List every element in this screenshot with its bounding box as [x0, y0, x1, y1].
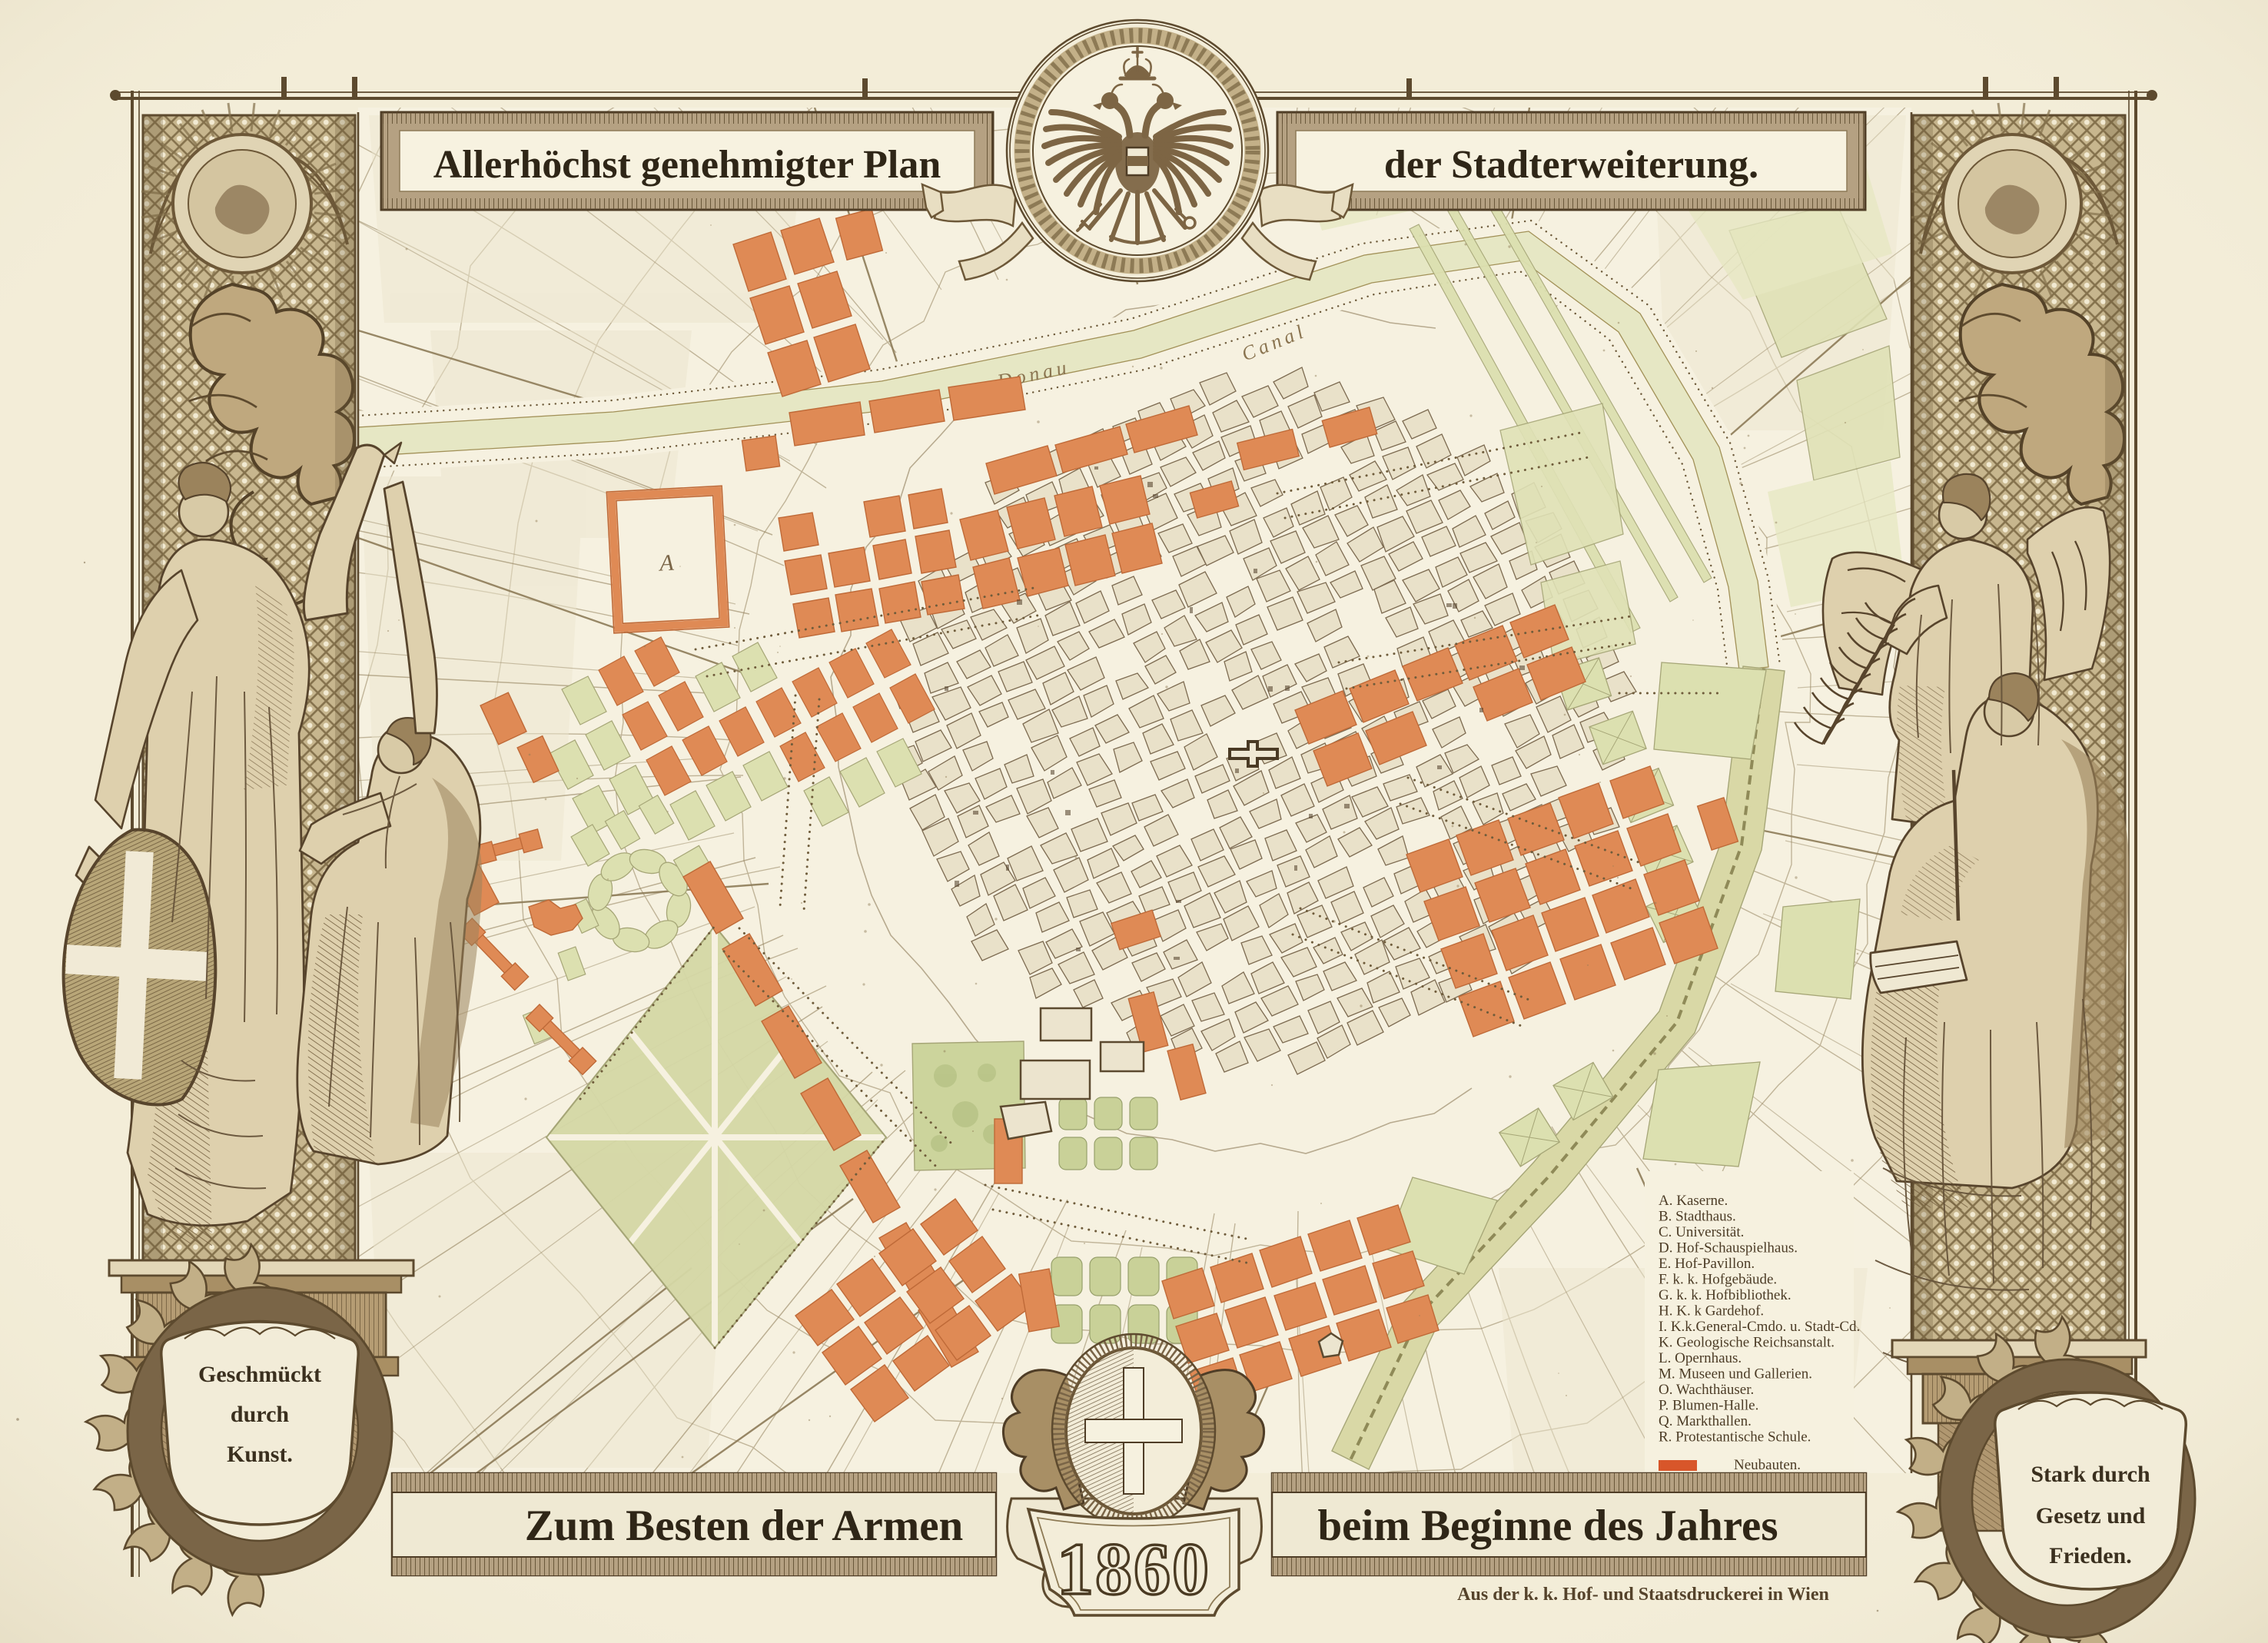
svg-text:Aus der k. k. Hof- und Staatsd: Aus der k. k. Hof- und Staatsdruckerei i… [1457, 1585, 1829, 1605]
svg-text:Allerhöchst genehmigter Plan: Allerhöchst genehmigter Plan [433, 143, 941, 187]
svg-text:P. Blumen-Halle.: P. Blumen-Halle. [1659, 1398, 1758, 1414]
svg-text:Frieden.: Frieden. [2049, 1543, 2131, 1568]
svg-text:G. k. k. Hofbibliothek.: G. k. k. Hofbibliothek. [1659, 1287, 1791, 1303]
svg-text:A. Kaserne.: A. Kaserne. [1659, 1193, 1728, 1209]
svg-text:H. K. k Gardehof.: H. K. k Gardehof. [1659, 1303, 1764, 1319]
svg-text:durch: durch [231, 1402, 289, 1427]
svg-text:L. Opernhaus.: L. Opernhaus. [1659, 1350, 1742, 1366]
svg-text:Gesetz und: Gesetz und [2036, 1503, 2146, 1528]
svg-text:M. Museen und Gallerien.: M. Museen und Gallerien. [1659, 1366, 1812, 1382]
svg-text:O. Wachthäuser.: O. Wachthäuser. [1659, 1382, 1754, 1398]
svg-text:E. Hof-Pavillon.: E. Hof-Pavillon. [1659, 1256, 1755, 1272]
svg-text:1860: 1860 [1057, 1528, 1210, 1610]
svg-text:I. K.k.General-Cmdo. u. Stad: I. K.k.General-Cmdo. u. Stadt-Cd. [1659, 1319, 1860, 1335]
svg-text:Kunst.: Kunst. [227, 1442, 293, 1467]
svg-text:A: A [657, 550, 675, 576]
svg-text:B. Stadthaus.: B. Stadthaus. [1659, 1209, 1736, 1225]
svg-text:der Stadterweiterung.: der Stadterweiterung. [1384, 143, 1758, 187]
svg-text:R. Protestantische Schule.: R. Protestantische Schule. [1659, 1429, 1811, 1446]
svg-text:D. Hof-Schauspielhaus.: D. Hof-Schauspielhaus. [1659, 1240, 1798, 1256]
svg-text:Zum Besten der Armen: Zum Besten der Armen [525, 1502, 964, 1550]
svg-text:Geschmückt: Geschmückt [198, 1362, 321, 1387]
svg-text:beim Beginne des Jahres: beim Beginne des Jahres [1317, 1502, 1778, 1550]
svg-text:C. Universität.: C. Universität. [1659, 1224, 1744, 1240]
svg-text:Stark durch: Stark durch [2031, 1462, 2150, 1487]
svg-text:K. Geologische Reichsanstalt.: K. Geologische Reichsanstalt. [1659, 1335, 1835, 1351]
svg-text:Neubauten.: Neubauten. [1734, 1457, 1801, 1473]
svg-text:Q. Markthallen.: Q. Markthallen. [1659, 1413, 1752, 1429]
svg-text:F. k. k. Hofgebäude.: F. k. k. Hofgebäude. [1659, 1272, 1777, 1288]
